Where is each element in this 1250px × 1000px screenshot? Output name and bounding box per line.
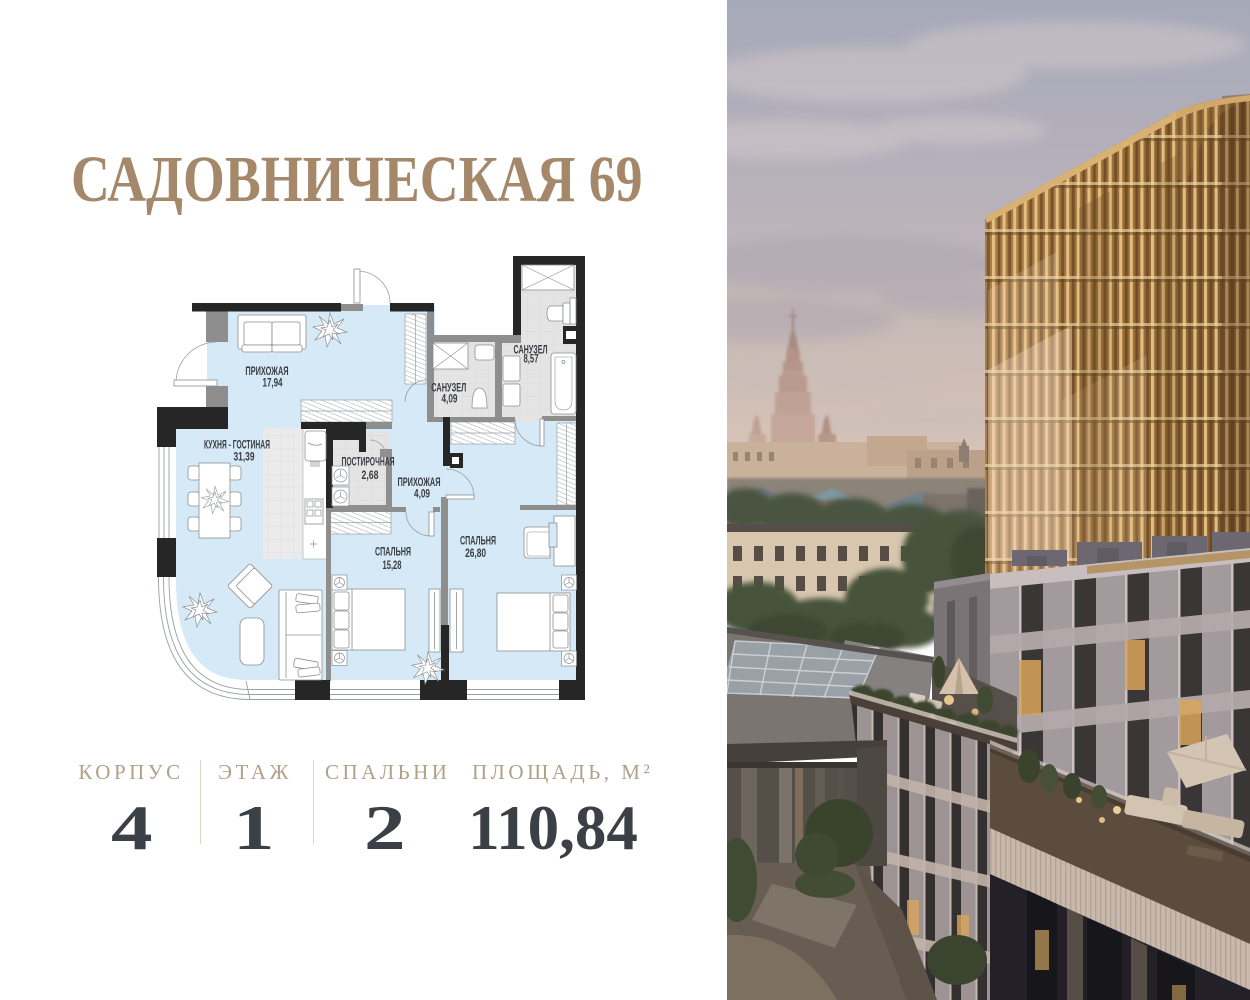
svg-text:4,09: 4,09 xyxy=(414,489,430,501)
svg-text:ПОСТИРОЧНАЯ: ПОСТИРОЧНАЯ xyxy=(342,457,395,469)
svg-text:8,57: 8,57 xyxy=(524,354,539,366)
svg-text:26,80: 26,80 xyxy=(465,548,486,560)
svg-text:ПРИХОЖАЯ: ПРИХОЖАЯ xyxy=(398,477,441,489)
svg-text:4,09: 4,09 xyxy=(442,394,458,406)
svg-text:КУХНЯ - ГОСТИНАЯ: КУХНЯ - ГОСТИНАЯ xyxy=(204,440,270,452)
svg-text:31,39: 31,39 xyxy=(234,452,255,464)
svg-text:СПАЛЬНЯ: СПАЛЬНЯ xyxy=(460,536,496,548)
svg-text:17,94: 17,94 xyxy=(263,378,283,390)
svg-text:15,28: 15,28 xyxy=(383,560,402,572)
svg-text:СПАЛЬНЯ: СПАЛЬНЯ xyxy=(375,547,411,559)
svg-text:ПРИХОЖАЯ: ПРИХОЖАЯ xyxy=(245,366,288,378)
svg-text:2,68: 2,68 xyxy=(362,470,379,482)
